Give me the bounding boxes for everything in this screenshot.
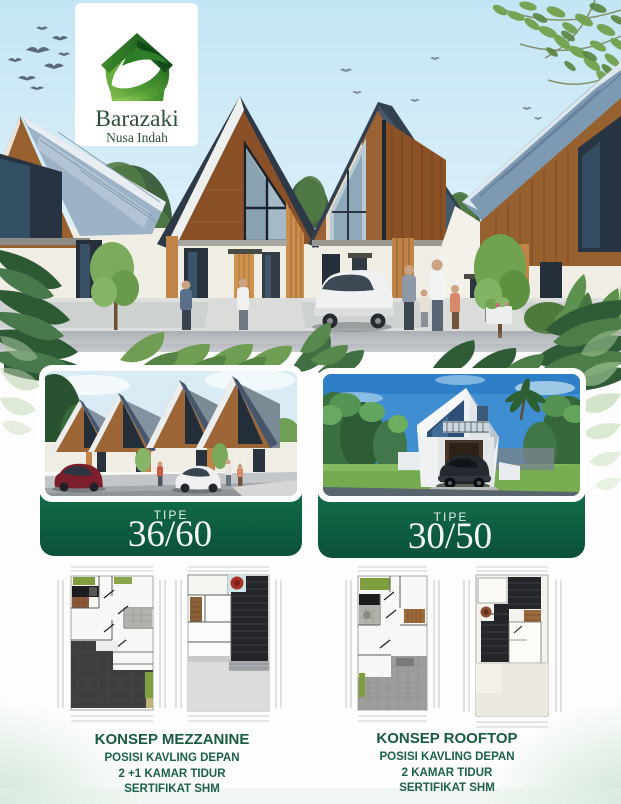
svg-text:30/50: 30/50	[408, 516, 492, 557]
svg-text:SERTIFIKAT SHM: SERTIFIKAT SHM	[124, 783, 220, 795]
svg-text:KONSEP ROOFTOP: KONSEP ROOFTOP	[376, 730, 517, 747]
svg-text:36/60: 36/60	[128, 514, 212, 555]
svg-text:SERTIFIKAT SHM: SERTIFIKAT SHM	[399, 782, 495, 794]
svg-text:2 KAMAR TIDUR: 2 KAMAR TIDUR	[402, 767, 493, 779]
svg-text:POSISI KAVLING DEPAN: POSISI KAVLING DEPAN	[379, 751, 514, 763]
svg-text:2 +1 KAMAR TIDUR: 2 +1 KAMAR TIDUR	[118, 768, 226, 780]
svg-text:Barazaki: Barazaki	[95, 106, 179, 132]
svg-text:KONSEP MEZZANINE: KONSEP MEZZANINE	[95, 731, 250, 748]
svg-text:POSISI KAVLING DEPAN: POSISI KAVLING DEPAN	[104, 752, 239, 764]
svg-text:Nusa Indah: Nusa Indah	[106, 130, 168, 145]
